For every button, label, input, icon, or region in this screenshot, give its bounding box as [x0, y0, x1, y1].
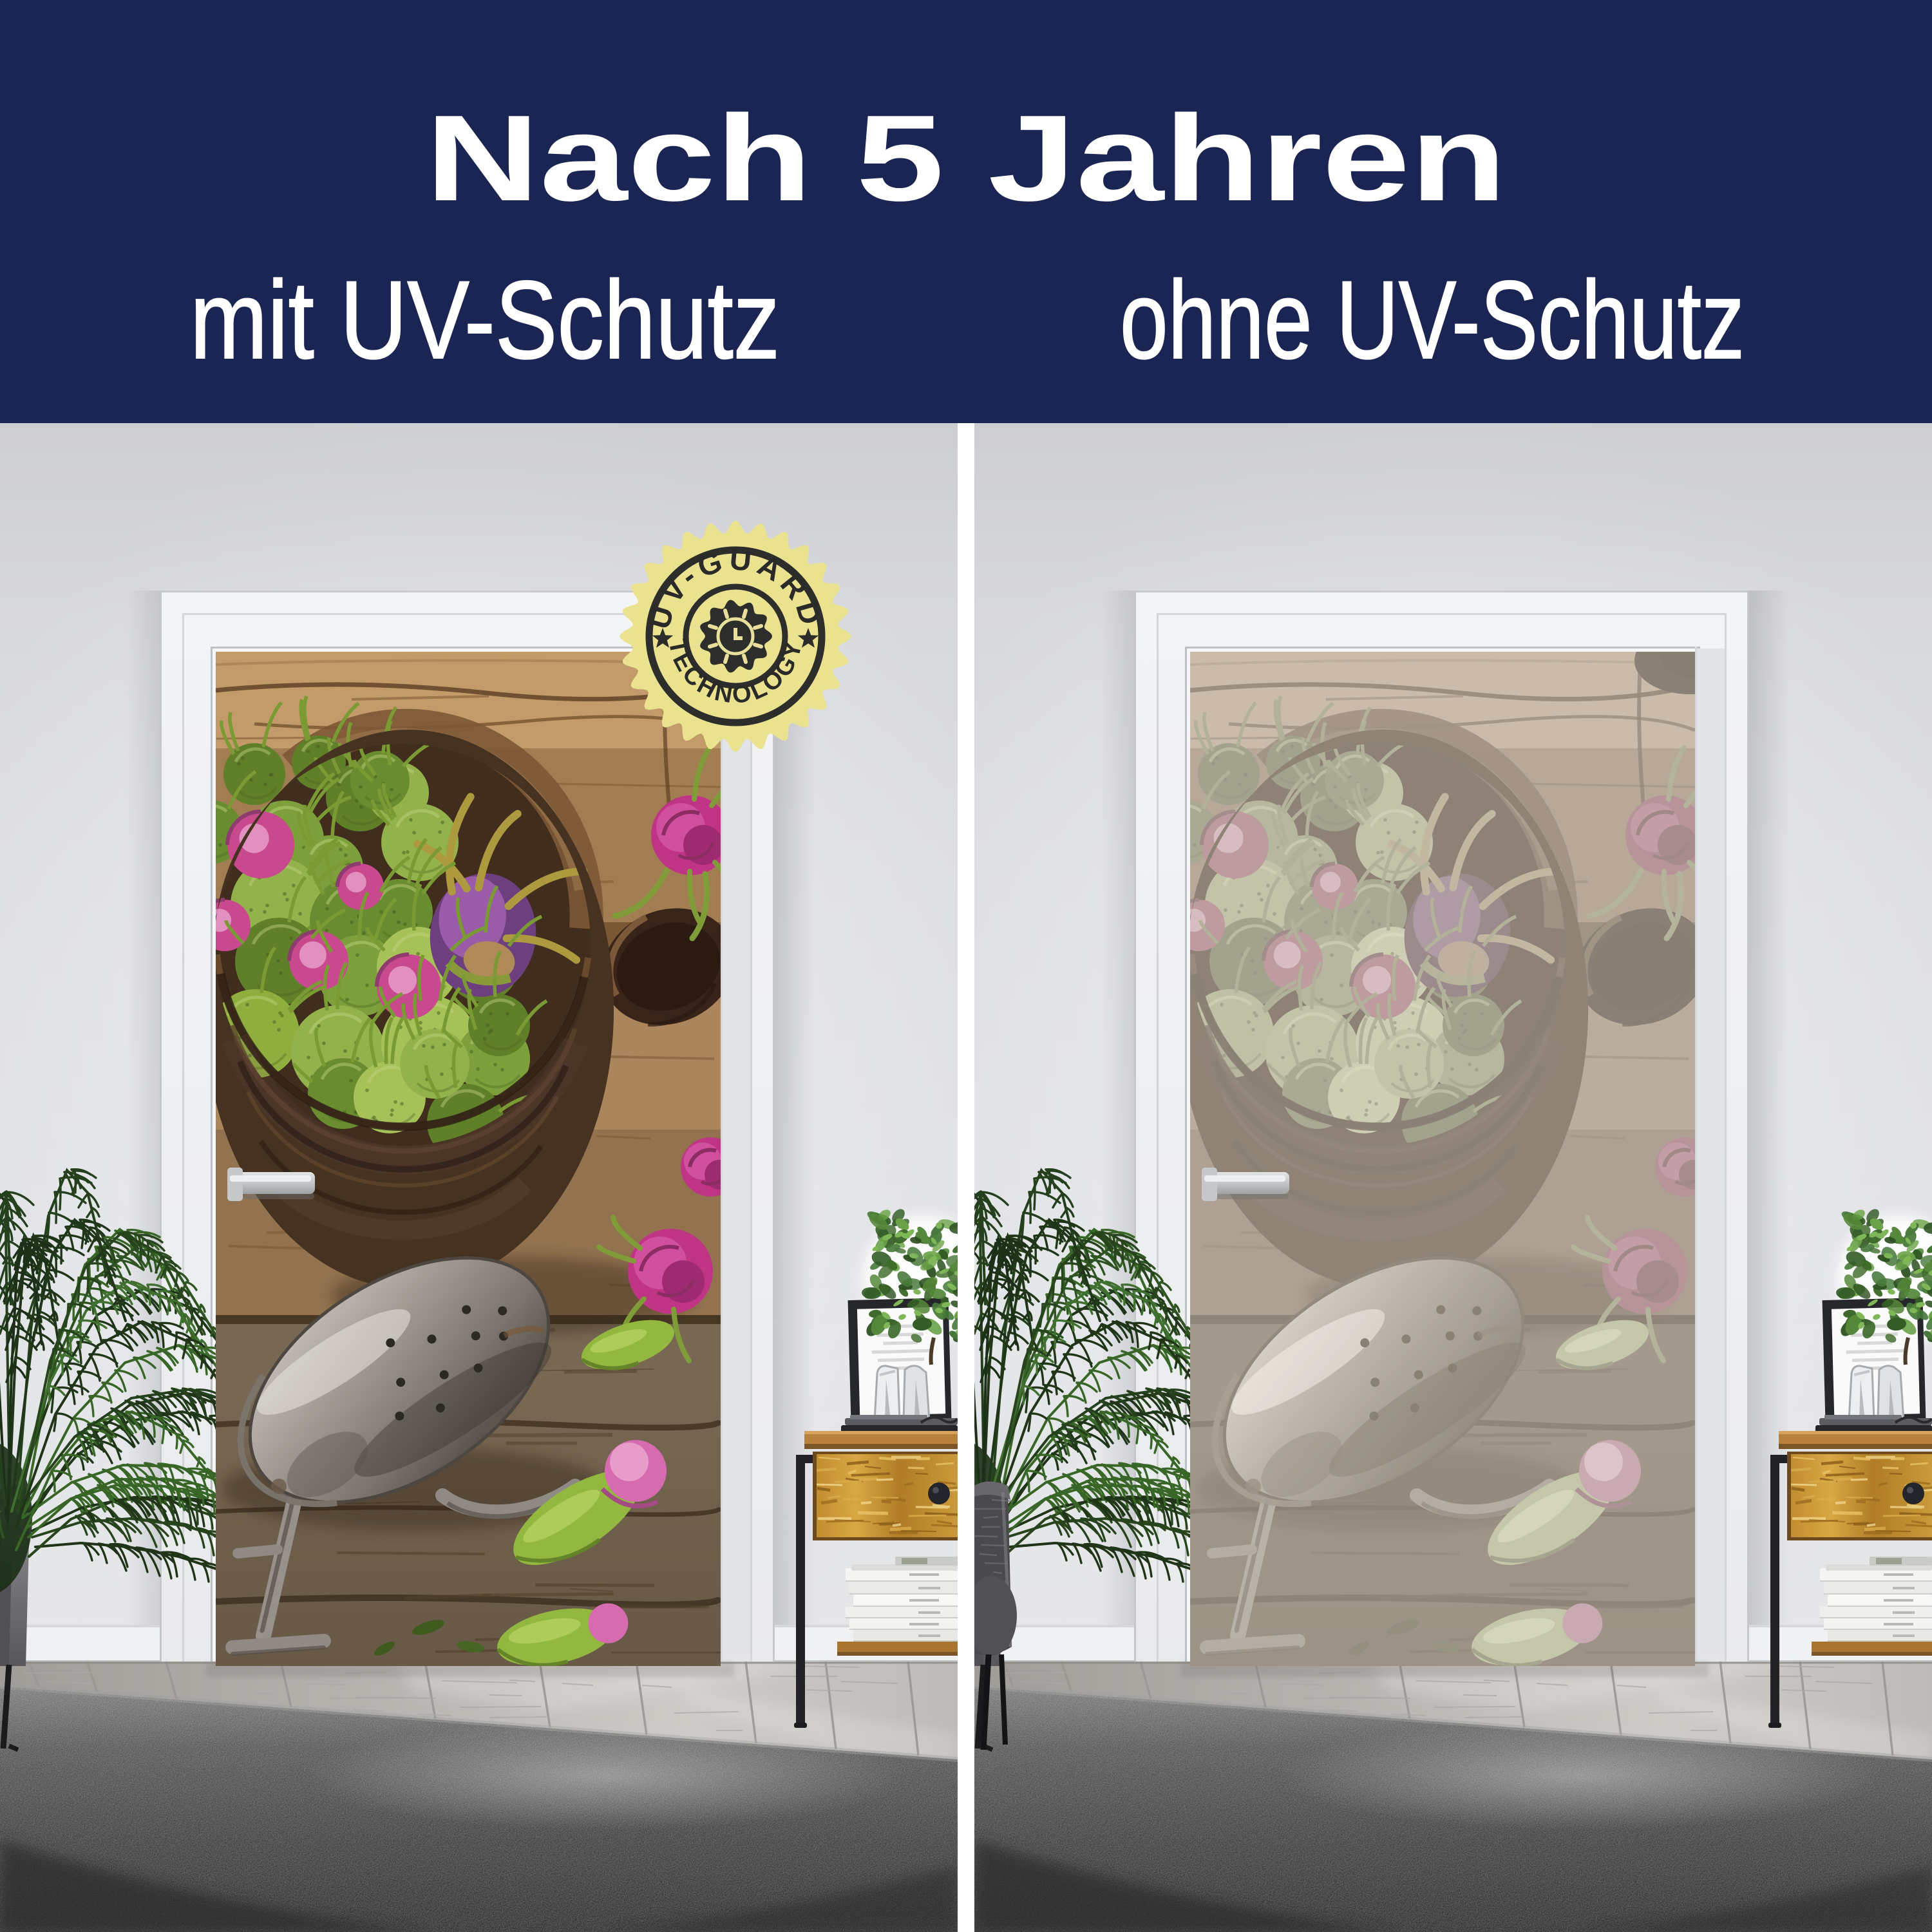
svg-text:ohne UV-Schutz: ohne UV-Schutz: [1120, 258, 1745, 382]
svg-text:mit UV-Schutz: mit UV-Schutz: [190, 258, 780, 382]
svg-text:Nach 5 Jahren: Nach 5 Jahren: [426, 90, 1507, 227]
